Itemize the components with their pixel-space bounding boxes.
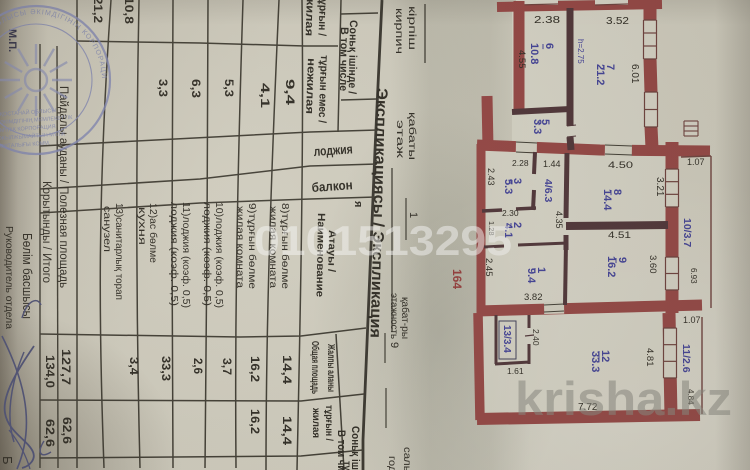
svg-text:4.50: 4.50 bbox=[608, 160, 633, 171]
svg-text:13/3.4: 13/3.4 bbox=[501, 325, 512, 353]
svg-text:4,1: 4,1 bbox=[258, 83, 270, 109]
svg-text:жилая: жилая bbox=[303, 0, 316, 36]
svg-text:4.81: 4.81 bbox=[644, 348, 655, 367]
svg-text:Руководитель отдела: Руководитель отдела bbox=[3, 226, 15, 329]
svg-text:14,4: 14,4 bbox=[280, 355, 292, 385]
svg-text:13)санитарлық торап: 13)санитарлық торап bbox=[113, 203, 124, 300]
svg-text:4.55: 4.55 bbox=[516, 50, 527, 69]
svg-text:6.01: 6.01 bbox=[629, 64, 640, 84]
svg-text:6.93: 6.93 bbox=[689, 268, 698, 284]
svg-text:санузел: санузел bbox=[101, 206, 112, 252]
svg-text:2.40: 2.40 bbox=[531, 329, 541, 346]
svg-text:кірпіш: кірпіш bbox=[406, 6, 418, 50]
svg-text:3,3: 3,3 bbox=[156, 79, 168, 97]
svg-text:21,2: 21,2 bbox=[91, 0, 103, 23]
svg-text:балкон: балкон bbox=[311, 177, 353, 195]
svg-text:6,3: 6,3 bbox=[189, 79, 201, 98]
svg-text:2.38: 2.38 bbox=[534, 15, 561, 26]
svg-text:h=2.75: h=2.75 bbox=[576, 39, 585, 64]
svg-text:2.28: 2.28 bbox=[512, 158, 529, 168]
svg-text:1.44: 1.44 bbox=[543, 159, 561, 169]
svg-text:тұрғын: тұрғын bbox=[341, 461, 353, 470]
svg-text:я: я bbox=[352, 201, 364, 207]
svg-text:2.43: 2.43 bbox=[486, 168, 496, 186]
svg-text:11)лоджия (коэф. 0,5): 11)лоджия (коэф. 0,5) bbox=[180, 202, 191, 308]
svg-text:3,4: 3,4 bbox=[127, 357, 139, 376]
svg-text:10)лоджия (коэф. 0,5): 10)лоджия (коэф. 0,5) bbox=[213, 202, 224, 308]
svg-text:3,7: 3,7 bbox=[220, 358, 232, 375]
svg-text:кирпич: кирпич bbox=[393, 8, 405, 54]
svg-text:Экспликациясы / Экспликация: Экспликациясы / Экспликация bbox=[366, 88, 390, 338]
svg-text:11/2.6: 11/2.6 bbox=[680, 344, 692, 373]
svg-text:16,2: 16,2 bbox=[248, 356, 260, 382]
svg-text:62,6: 62,6 bbox=[60, 417, 72, 444]
svg-text:0101513295: 0101513295 bbox=[254, 217, 512, 264]
svg-text:лоджия (коэф. 0,5): лоджия (коэф. 0,5) bbox=[168, 202, 179, 306]
svg-text:3.21: 3.21 bbox=[654, 177, 665, 197]
svg-text:Жалпы аланы: Жалпы аланы bbox=[325, 343, 337, 392]
svg-text:жилая: жилая bbox=[310, 407, 322, 438]
svg-text:кухня: кухня bbox=[136, 207, 147, 245]
svg-text:6: 6 bbox=[543, 43, 555, 49]
svg-text:этажность: этажность bbox=[388, 293, 399, 339]
svg-text:тұрғын емес /: тұрғын емес / bbox=[316, 55, 330, 123]
svg-text:10.8: 10.8 bbox=[528, 43, 540, 64]
svg-text:5.3: 5.3 bbox=[502, 179, 514, 194]
svg-text:год постро: год постро bbox=[386, 456, 398, 470]
svg-text:10/3.7: 10/3.7 bbox=[681, 218, 693, 247]
svg-text:3.3: 3.3 bbox=[531, 119, 543, 134]
svg-text:тұрғын /: тұрғын / bbox=[316, 0, 329, 36]
svg-text:М.П.: М.П. bbox=[6, 29, 18, 52]
svg-text:қабаты: қабаты bbox=[406, 112, 418, 160]
svg-text:12)ас бөлме: 12)ас бөлме bbox=[147, 203, 158, 264]
svg-text:тұрғын /: тұрғын / bbox=[323, 405, 335, 441]
svg-text:33,3: 33,3 bbox=[159, 356, 171, 381]
svg-text:4/6.3: 4/6.3 bbox=[542, 179, 554, 203]
svg-text:Б: Б bbox=[0, 456, 15, 465]
svg-text:164: 164 bbox=[450, 269, 464, 289]
svg-text:этаж: этаж bbox=[394, 120, 406, 158]
svg-text:1.07: 1.07 bbox=[687, 157, 705, 167]
svg-text:127,7: 127,7 bbox=[59, 349, 71, 385]
svg-text:3.82: 3.82 bbox=[524, 292, 543, 303]
svg-text:нежилая: нежилая bbox=[303, 58, 317, 114]
svg-text:ОРТАЛЫҒЫ КОММ.: ОРТАЛЫҒЫ КОММ. bbox=[0, 140, 51, 150]
svg-text:Корытынды / Итого: Корытынды / Итого bbox=[40, 181, 52, 283]
svg-text:16,2: 16,2 bbox=[248, 409, 260, 434]
svg-text:2,6: 2,6 bbox=[191, 358, 203, 374]
svg-text:krisha.kz: krisha.kz bbox=[515, 372, 732, 425]
svg-text:салынған: салынған bbox=[401, 447, 413, 470]
svg-text:16.2: 16.2 bbox=[605, 256, 617, 277]
svg-text:3.60: 3.60 bbox=[647, 255, 658, 274]
svg-text:4.35: 4.35 bbox=[554, 211, 564, 229]
svg-text:В том числе: В том числе bbox=[337, 27, 350, 91]
svg-text:5,3: 5,3 bbox=[222, 79, 234, 97]
svg-text:қабат-ры: қабат-ры bbox=[399, 297, 411, 339]
svg-text:9: 9 bbox=[388, 342, 400, 348]
svg-text:134,0: 134,0 bbox=[43, 355, 55, 388]
svg-text:лоджия: лоджия bbox=[313, 141, 353, 159]
svg-text:4.51: 4.51 bbox=[608, 230, 631, 241]
svg-text:Общая площадь: Общая площадь bbox=[309, 341, 321, 394]
svg-text:3.52: 3.52 bbox=[606, 16, 630, 27]
svg-text:лоджия (коэф. 0,5): лоджия (коэф. 0,5) bbox=[201, 202, 212, 306]
svg-text:14,4: 14,4 bbox=[280, 416, 292, 446]
svg-text:9,4: 9,4 bbox=[283, 79, 295, 106]
svg-text:10,8: 10,8 bbox=[122, 0, 134, 25]
svg-text:жилая комната: жилая комната bbox=[234, 206, 245, 289]
svg-text:1.07: 1.07 bbox=[683, 315, 701, 325]
svg-text:62,6: 62,6 bbox=[43, 419, 55, 447]
